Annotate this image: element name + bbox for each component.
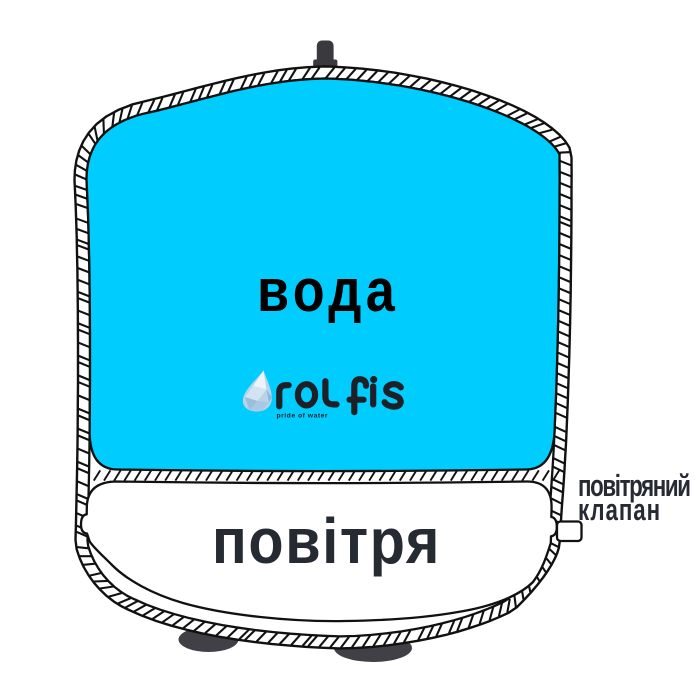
svg-text:pride of water: pride of water [277,413,329,420]
